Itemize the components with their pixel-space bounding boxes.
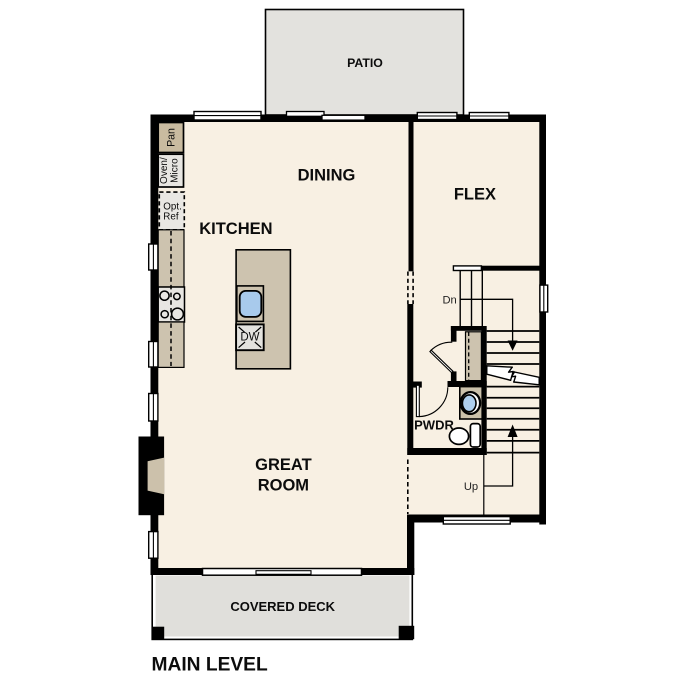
svg-text:COVERED DECK: COVERED DECK — [230, 599, 335, 614]
svg-text:FLEX: FLEX — [454, 186, 496, 204]
svg-text:GREAT: GREAT — [255, 456, 312, 474]
svg-text:DW: DW — [240, 331, 259, 343]
svg-text:Up: Up — [464, 481, 478, 493]
svg-text:Oven/: Oven/ — [159, 157, 170, 184]
svg-text:PWDR: PWDR — [414, 418, 454, 433]
svg-text:Micro: Micro — [170, 158, 181, 183]
svg-text:ROOM: ROOM — [258, 476, 309, 494]
svg-text:KITCHEN: KITCHEN — [199, 220, 272, 238]
svg-text:DINING: DINING — [298, 167, 356, 185]
svg-text:PATIO: PATIO — [347, 56, 383, 70]
svg-text:Dn: Dn — [442, 295, 456, 307]
svg-text:Pan: Pan — [166, 128, 178, 147]
svg-text:MAIN LEVEL: MAIN LEVEL — [152, 654, 268, 675]
svg-text:Ref: Ref — [163, 212, 179, 223]
